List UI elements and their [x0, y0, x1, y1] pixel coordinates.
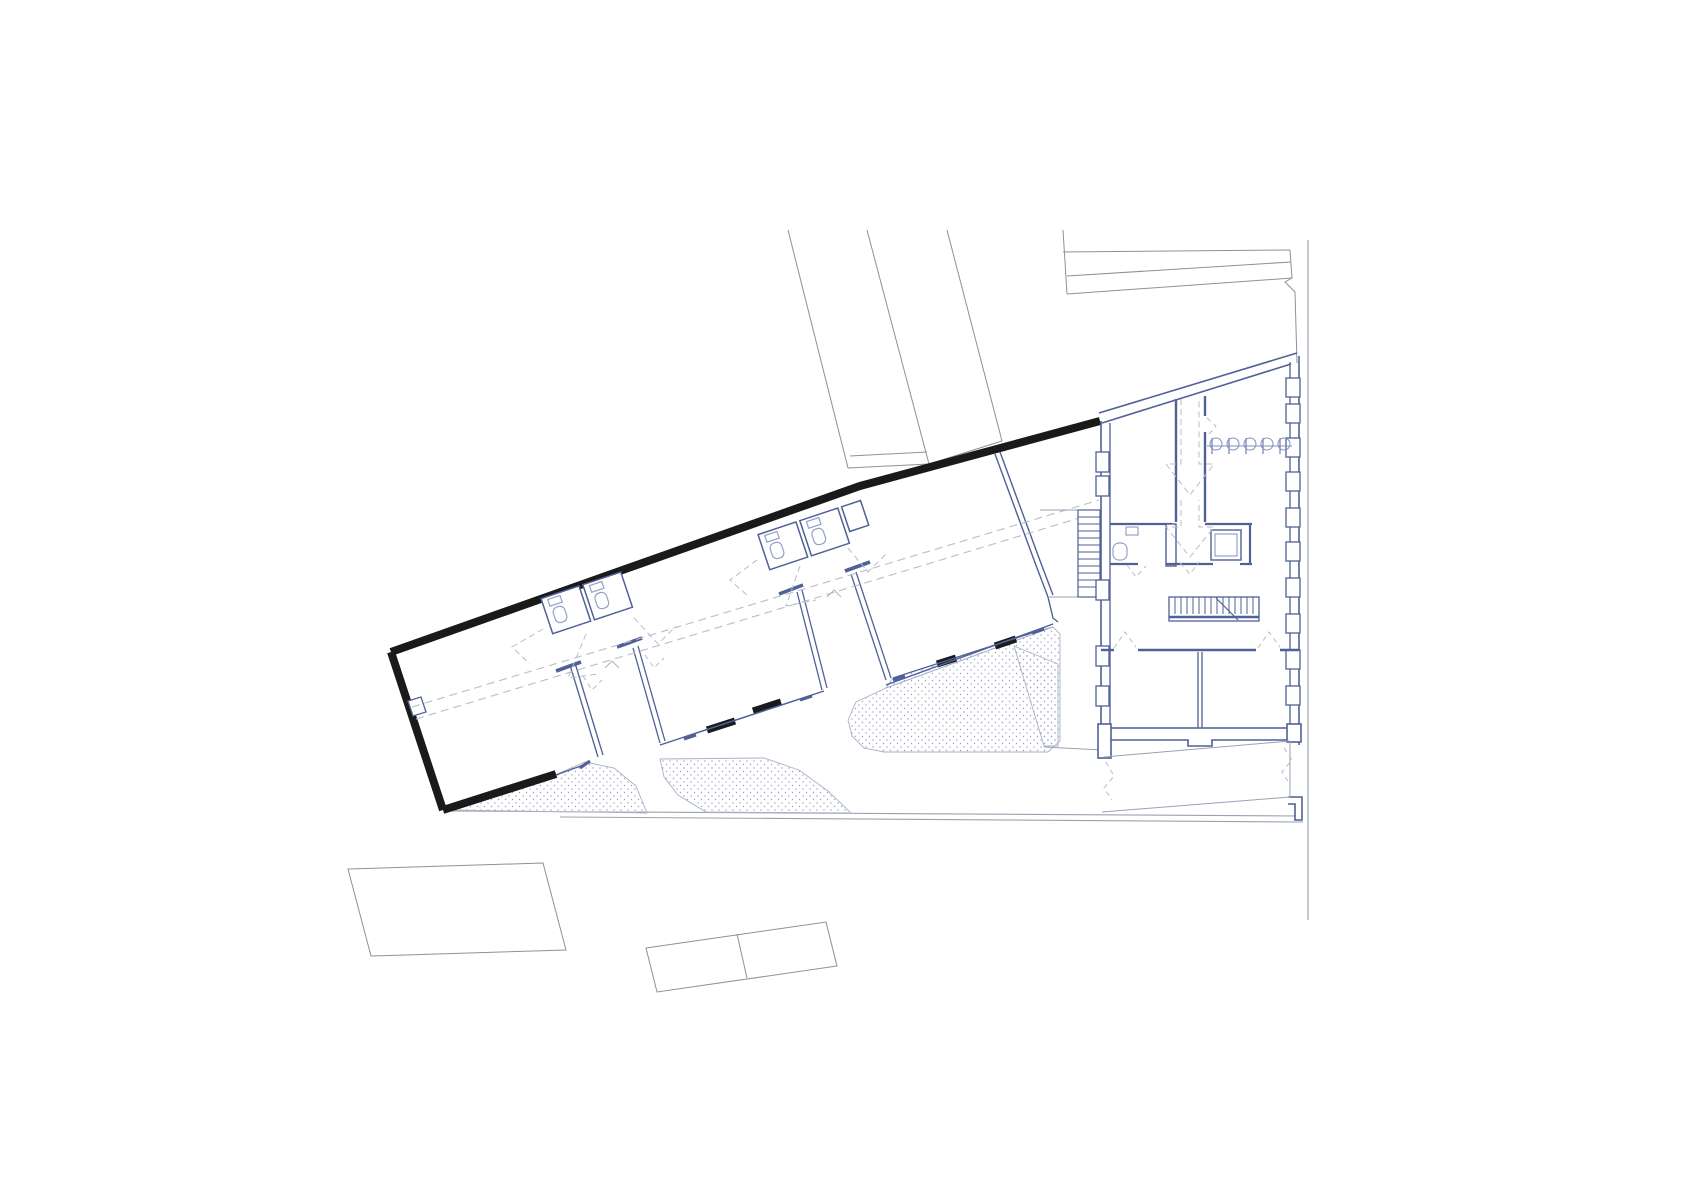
unit1-right-wall-outer: [570, 665, 598, 757]
door-swing-unit2: [645, 655, 664, 668]
unit2-facade-jamb-right: [800, 696, 812, 700]
door-swing-corridor-top: [1207, 418, 1216, 434]
rb-bath-right-jamb: [1166, 524, 1176, 566]
context-strip-a-bottom-inner: [850, 452, 927, 456]
core2-group: [758, 501, 872, 570]
ramp-break-left: [1104, 762, 1114, 800]
entry-flare-core2-left: [730, 560, 757, 596]
rb-window-right-6: [1286, 542, 1300, 561]
context-strip-line-3: [947, 230, 1002, 441]
unit2-right-wall-inner: [802, 590, 827, 688]
main-left-wall-black: [391, 652, 443, 810]
core2-room-b: [800, 508, 850, 556]
context-strip-line-2: [867, 230, 929, 464]
floor-plan-page: [0, 0, 1683, 1190]
main-top-wall-black: [391, 421, 1100, 652]
rb-window-left-2: [1096, 476, 1109, 496]
door-swing-unit1: [583, 676, 602, 690]
main-right-end-corner: [1048, 597, 1058, 622]
stipple-wedge-bottom-line: [1044, 747, 1102, 750]
chevron-unit1: [605, 661, 619, 668]
paving-stipple: [447, 627, 1102, 813]
rb-window-right-9: [1286, 650, 1300, 669]
street-edge-line-2: [560, 817, 1303, 822]
unit2-left-wall-outer: [633, 648, 660, 743]
main-right-end-wall-inner: [1000, 452, 1053, 595]
rb-window-left-3: [1096, 580, 1109, 600]
rb-br-garden-wall: [1288, 797, 1302, 820]
unit2-left-wall-inner: [638, 646, 665, 741]
rb-window-right-10: [1286, 686, 1300, 705]
context-topright-end: [1285, 250, 1297, 363]
context-topright-top-line: [1063, 250, 1290, 252]
rb-window-left-5: [1096, 686, 1109, 706]
unit3-left-wall-inner: [856, 572, 891, 678]
context-buildings: [348, 230, 1308, 992]
rb-window-right-7: [1286, 578, 1300, 597]
door-swing-room-right: [1258, 632, 1280, 648]
floor-plan-canvas: [0, 0, 1683, 1190]
context-strip-line-1: [788, 230, 848, 468]
context-topright-corner: [1063, 230, 1067, 294]
stipple-mid-band: [660, 758, 851, 813]
rb-window-right-4: [1286, 472, 1300, 491]
main-right-end-wall-outer: [995, 454, 1048, 597]
rb-toilet-bowl: [1113, 543, 1127, 560]
core2-room-a: [758, 522, 808, 570]
entry-arrow-upper: [1166, 399, 1214, 495]
unit2-facade-jamb-left: [684, 735, 696, 739]
door-swing-bath: [1127, 565, 1146, 577]
unit2-facade-line: [684, 695, 812, 737]
entry-flare-core1-left: [512, 629, 543, 664]
unit2-right-wall-outer: [797, 592, 822, 690]
ramp: [1102, 741, 1292, 812]
rb-corner-block-br: [1287, 724, 1301, 742]
core2-room-c: [842, 501, 869, 532]
context-bottomleft-building-1: [348, 863, 566, 956]
ramp-top-edge: [1104, 741, 1290, 757]
context-bottomleft-building-2: [646, 922, 837, 992]
rb-window-right-8: [1286, 614, 1300, 633]
rb-corner-block-bl: [1098, 724, 1111, 758]
unit-cores: [541, 501, 872, 634]
rb-window-right-5: [1286, 508, 1300, 527]
rb-window-right-3: [1286, 438, 1300, 457]
context-topright-mid-line: [1067, 262, 1291, 276]
unit1-right-wall-inner: [575, 663, 603, 755]
rb-top-wall-outer: [1099, 353, 1297, 413]
rb-window-right-1: [1286, 378, 1300, 397]
rb-window-right-2: [1286, 404, 1300, 423]
rb-window-left-1: [1096, 452, 1109, 472]
unit3-left-wall-outer: [851, 574, 886, 680]
rb-top-wall-inner: [1102, 364, 1291, 423]
door-swing-room-left: [1114, 632, 1136, 648]
rb-toilet-tank: [1126, 527, 1138, 535]
ramp-bottom-edge: [1102, 797, 1290, 812]
stipple-left-wedge: [447, 762, 647, 813]
context-topright-low-line: [1067, 278, 1292, 294]
